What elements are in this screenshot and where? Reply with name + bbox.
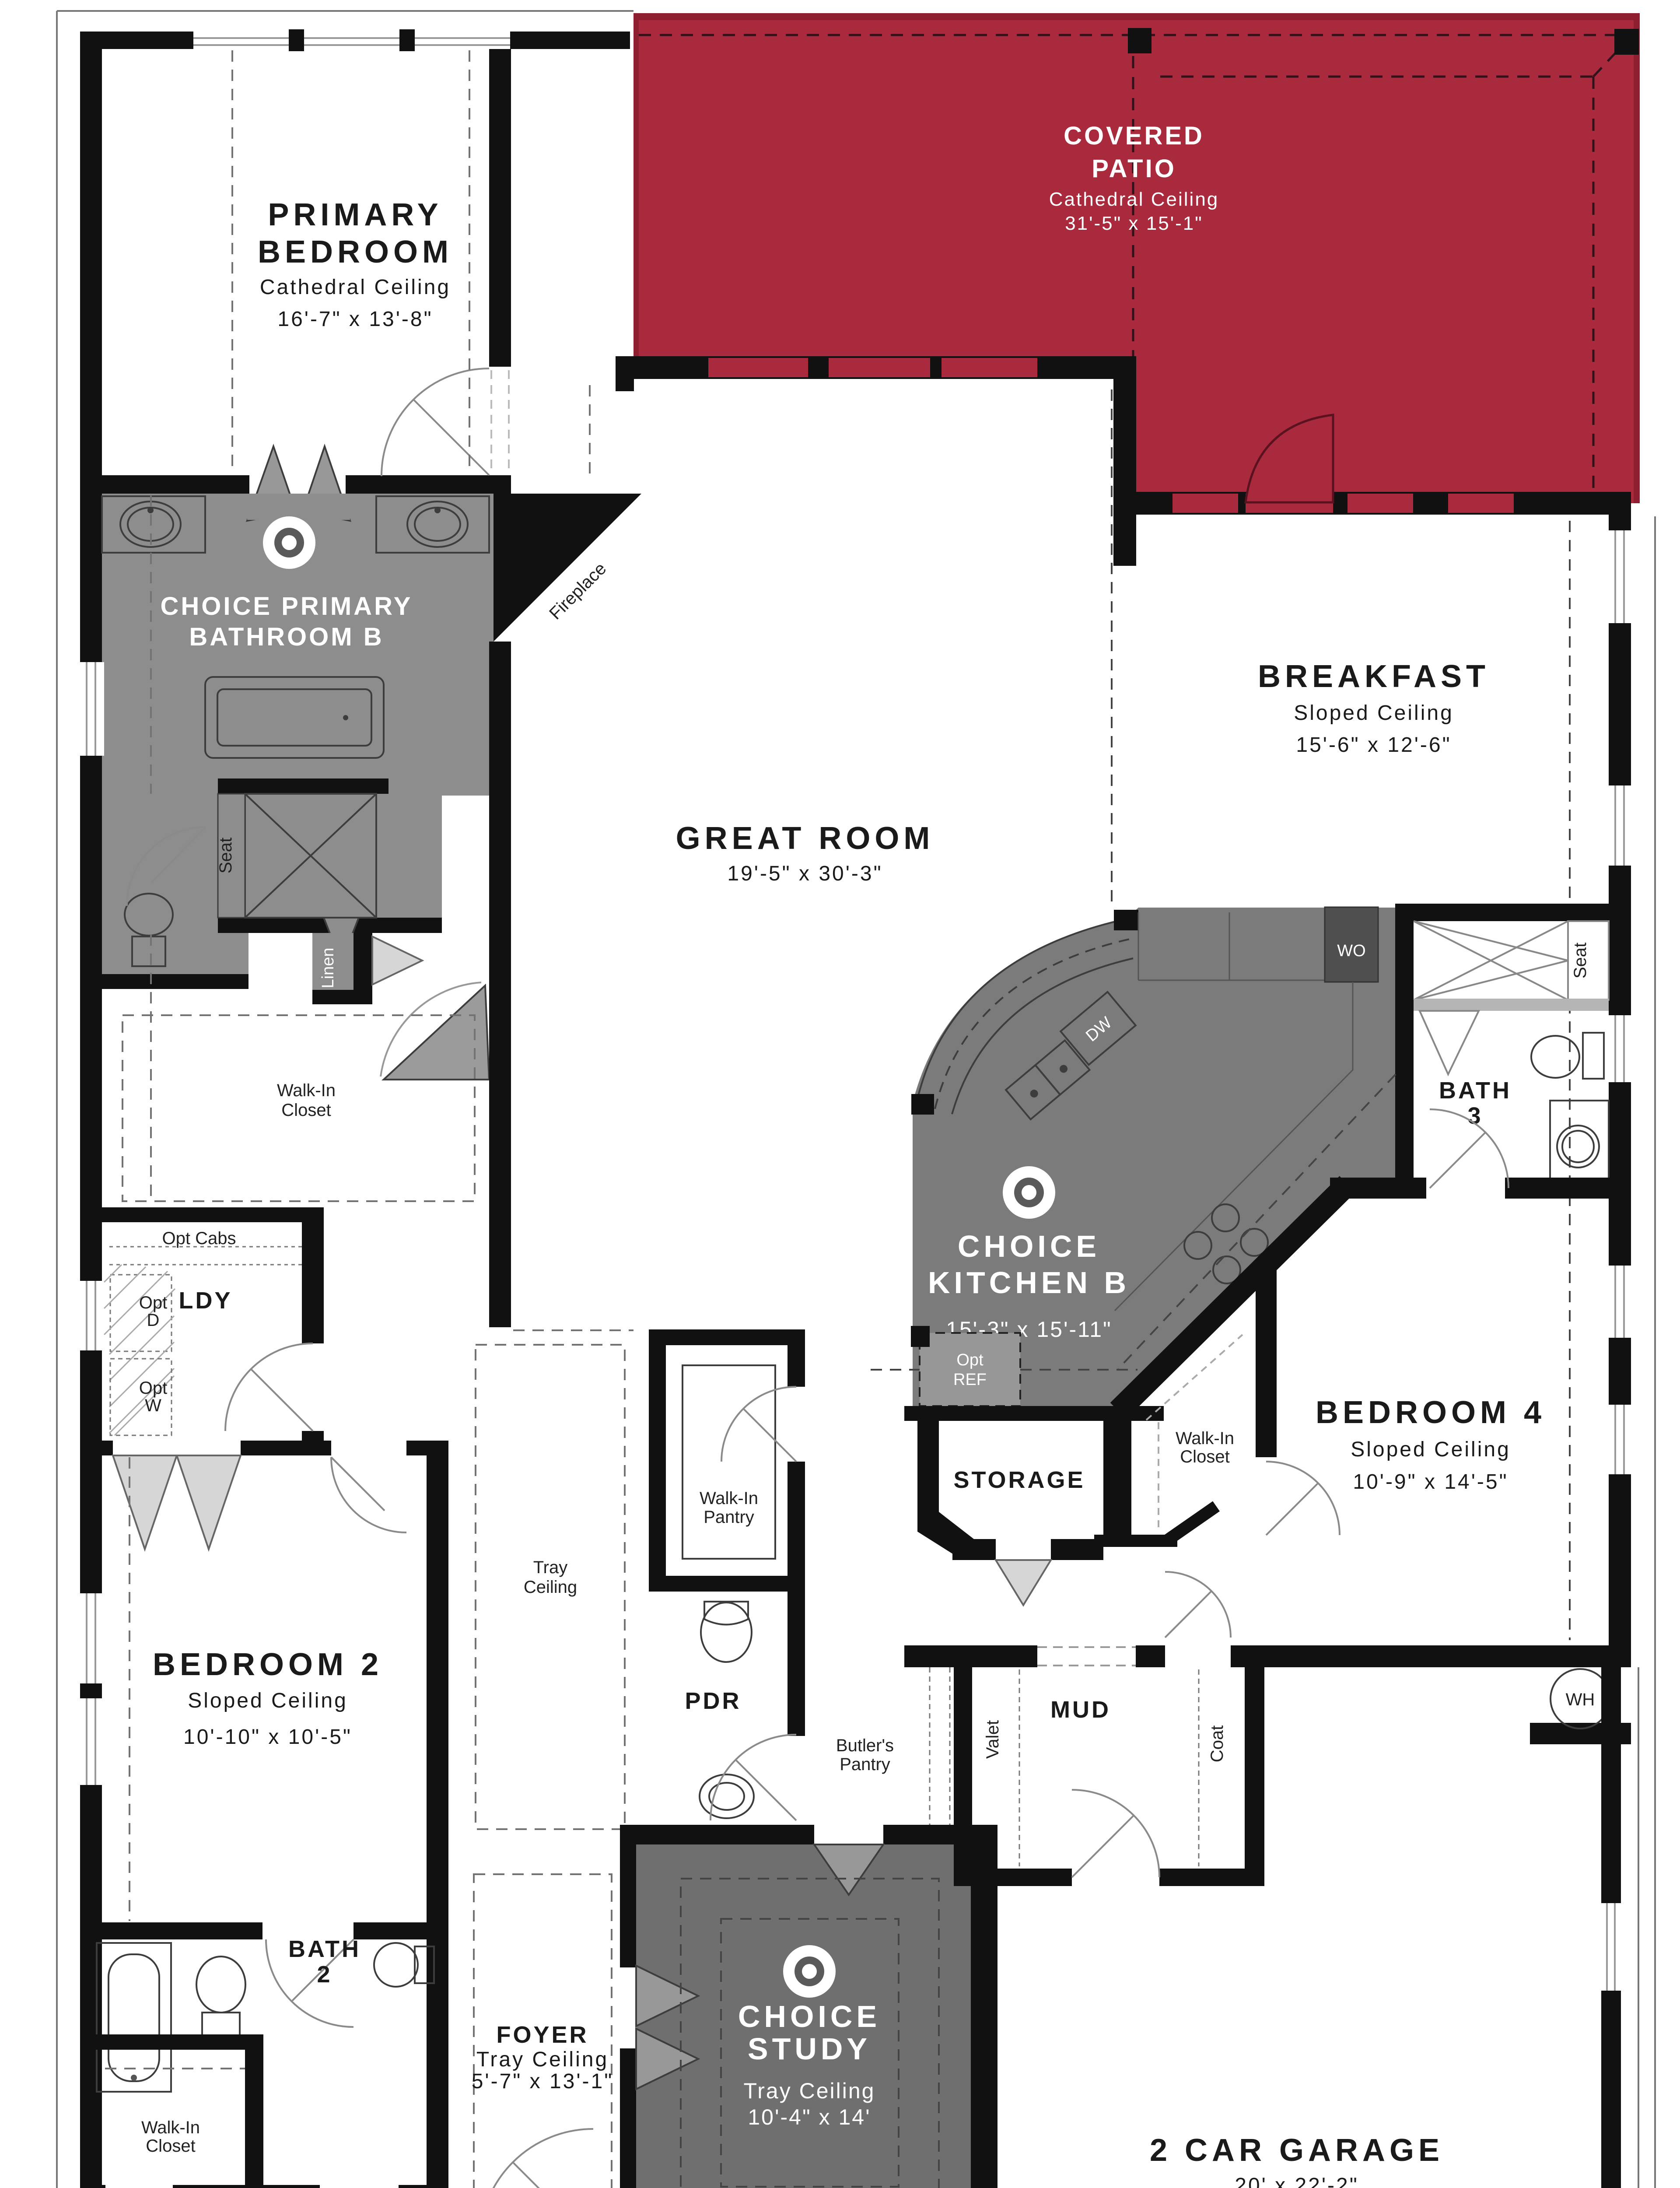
svg-text:Linen: Linen (319, 948, 337, 989)
svg-text:10'-4" x 14': 10'-4" x 14' (748, 2105, 871, 2129)
svg-text:BREAKFAST: BREAKFAST (1258, 659, 1490, 694)
svg-text:MUD: MUD (1050, 1697, 1111, 1723)
svg-text:Tray Ceiling: Tray Ceiling (476, 2048, 609, 2071)
svg-text:Walk-In: Walk-In (141, 2118, 200, 2137)
svg-text:Closet: Closet (281, 1101, 331, 1120)
svg-text:3: 3 (1467, 1103, 1483, 1129)
svg-text:Cathedral Ceiling: Cathedral Ceiling (260, 276, 451, 299)
svg-text:BATHROOM B: BATHROOM B (189, 623, 384, 651)
svg-text:31'-5" x 15'-1": 31'-5" x 15'-1" (1065, 213, 1203, 234)
svg-text:Tray: Tray (533, 1558, 568, 1577)
svg-text:GREAT ROOM: GREAT ROOM (676, 821, 934, 856)
svg-text:Butler's: Butler's (836, 1736, 894, 1755)
svg-text:WO: WO (1337, 942, 1365, 960)
svg-text:PRIMARY: PRIMARY (268, 197, 442, 232)
svg-text:Closet: Closet (146, 2136, 195, 2156)
svg-text:Sloped Ceiling: Sloped Ceiling (1294, 701, 1454, 725)
svg-text:BATH: BATH (1439, 1077, 1512, 1104)
svg-text:16'-7" x 13'-8": 16'-7" x 13'-8" (277, 308, 433, 331)
svg-text:Pantry: Pantry (703, 1508, 754, 1527)
svg-text:Opt: Opt (139, 1293, 167, 1312)
svg-text:2 CAR GARAGE: 2 CAR GARAGE (1150, 2133, 1444, 2168)
svg-text:W: W (145, 1396, 161, 1415)
svg-text:LDY: LDY (179, 1287, 233, 1314)
svg-text:Coat: Coat (1207, 1725, 1227, 1763)
svg-text:10'-10" x 10'-5": 10'-10" x 10'-5" (183, 1725, 352, 1749)
svg-text:Seat: Seat (216, 838, 235, 873)
svg-text:Opt Cabs: Opt Cabs (162, 1229, 236, 1248)
svg-text:Sloped Ceiling: Sloped Ceiling (1351, 1438, 1511, 1461)
svg-text:Walk-In: Walk-In (700, 1489, 758, 1508)
svg-text:CHOICE PRIMARY: CHOICE PRIMARY (161, 592, 413, 621)
svg-text:COVERED: COVERED (1064, 122, 1204, 150)
svg-text:CHOICE: CHOICE (738, 1999, 881, 2034)
svg-text:2: 2 (317, 1961, 332, 1988)
svg-text:D: D (147, 1311, 160, 1330)
svg-text:Opt: Opt (139, 1378, 167, 1398)
svg-text:BEDROOM: BEDROOM (258, 235, 453, 270)
svg-text:PDR: PDR (685, 1688, 741, 1714)
svg-text:10'-9" x 14'-5": 10'-9" x 14'-5" (1353, 1470, 1508, 1494)
svg-text:WH: WH (1566, 1690, 1595, 1709)
svg-text:Tray Ceiling: Tray Ceiling (744, 2079, 875, 2103)
svg-text:BATH: BATH (288, 1936, 361, 1962)
svg-text:Pantry: Pantry (840, 1755, 890, 1774)
svg-text:19'-5" x 30'-3": 19'-5" x 30'-3" (727, 862, 882, 885)
svg-text:15'-6" x 12'-6": 15'-6" x 12'-6" (1296, 733, 1451, 757)
svg-text:BEDROOM 2: BEDROOM 2 (153, 1647, 383, 1682)
svg-text:Ceiling: Ceiling (524, 1578, 577, 1597)
svg-text:PATIO: PATIO (1092, 154, 1176, 183)
svg-text:Seat: Seat (1571, 943, 1590, 978)
svg-text:STORAGE: STORAGE (953, 1467, 1085, 1493)
svg-text:Walk-In: Walk-In (1176, 1429, 1234, 1448)
svg-text:Walk-In: Walk-In (277, 1081, 336, 1100)
svg-text:FOYER: FOYER (496, 2022, 588, 2048)
svg-text:Cathedral Ceiling: Cathedral Ceiling (1049, 189, 1219, 210)
svg-text:KITCHEN B: KITCHEN B (928, 1266, 1130, 1300)
svg-text:20' x 22'-2": 20' x 22'-2" (1235, 2174, 1359, 2188)
svg-text:Valet: Valet (983, 1720, 1002, 1759)
svg-text:REF: REF (953, 1371, 987, 1389)
svg-text:Sloped Ceiling: Sloped Ceiling (188, 1689, 348, 1712)
svg-text:Closet: Closet (1180, 1447, 1229, 1466)
svg-text:BEDROOM 4: BEDROOM 4 (1316, 1395, 1546, 1430)
svg-text:STUDY: STUDY (748, 2032, 871, 2066)
svg-text:Opt: Opt (956, 1351, 983, 1369)
svg-text:CHOICE: CHOICE (958, 1229, 1100, 1263)
svg-text:5'-7" x 13'-1": 5'-7" x 13'-1" (472, 2070, 614, 2093)
